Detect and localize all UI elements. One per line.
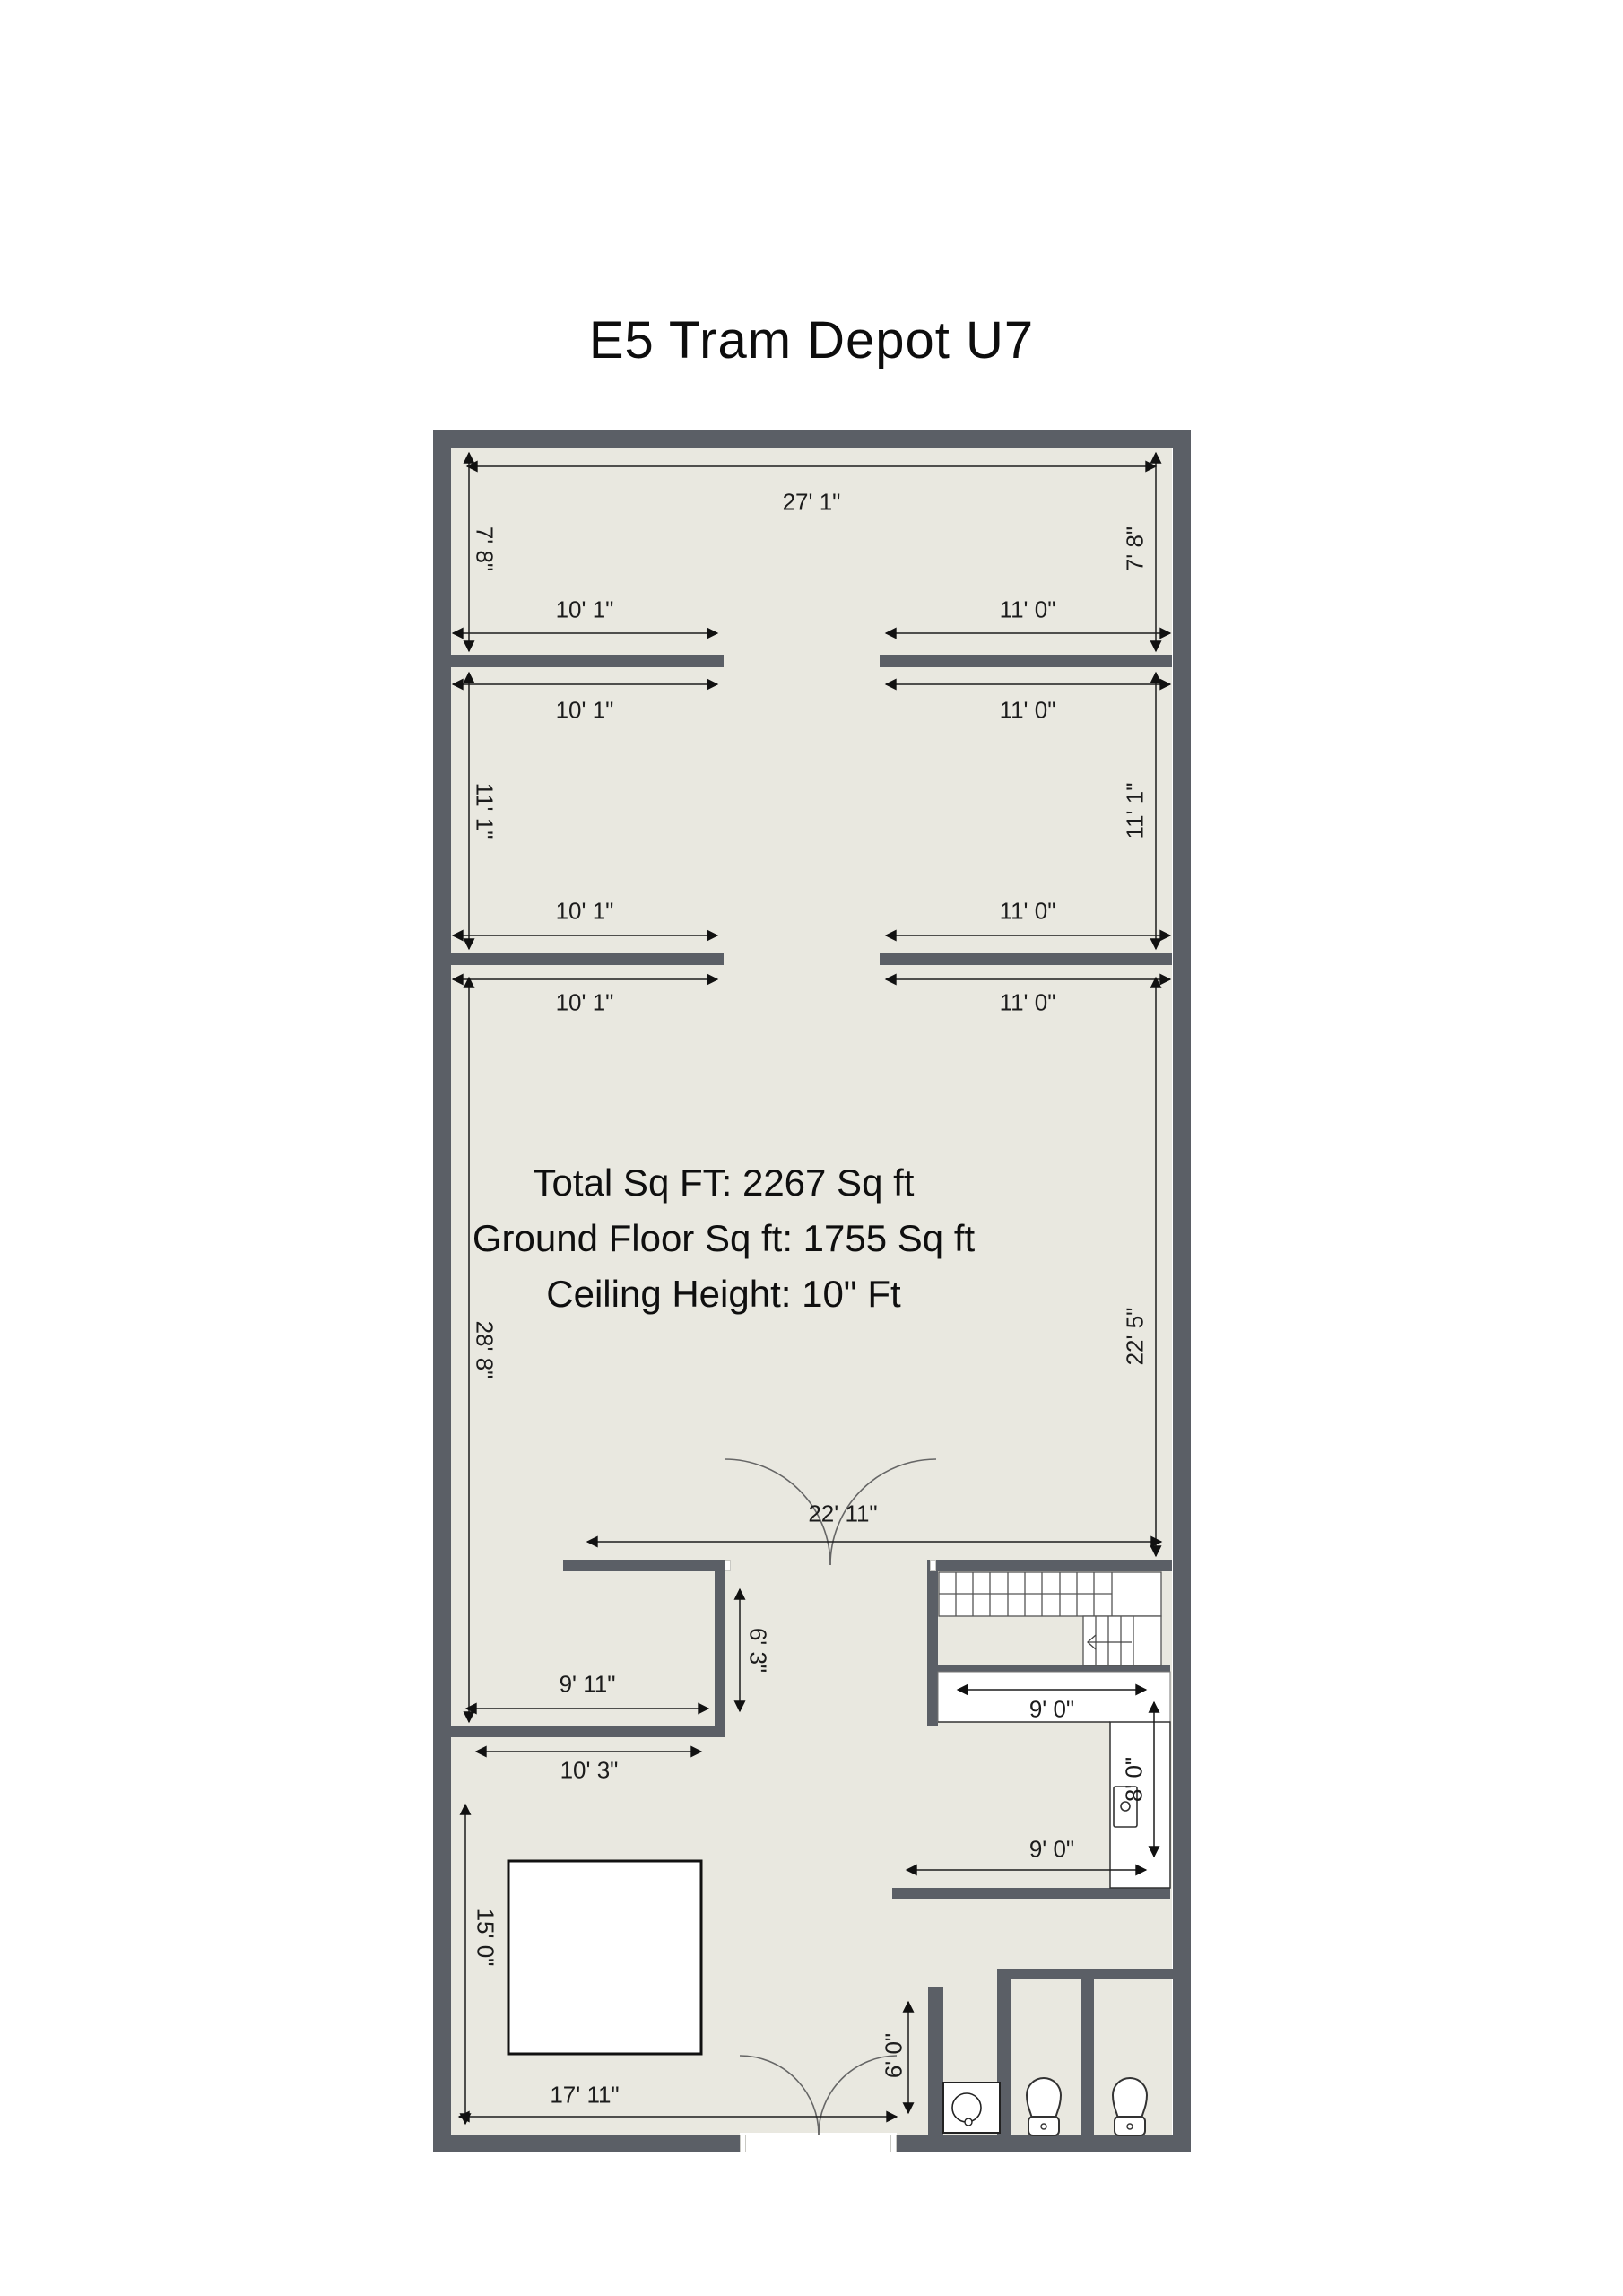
double-door-entrance <box>740 2056 897 2135</box>
summary-ceiling-height: Ceiling Height: 10" Ft <box>473 1266 975 1322</box>
summary-ground-sqft: Ground Floor Sq ft: 1755 Sq ft <box>473 1211 975 1266</box>
dim-label-28-8: 28' 8" <box>471 1321 499 1379</box>
bathroom-sink-icon <box>943 2083 1000 2133</box>
dim-label-22-11: 22' 11" <box>808 1500 877 1528</box>
dim-label-22-5: 22' 5" <box>1122 1308 1150 1366</box>
dim-label-11-0-room3: 11' 0" <box>1000 989 1056 1017</box>
dim-label-7-8-right: 7' 8" <box>1122 526 1150 571</box>
dim-label-11-1-right: 11' 1" <box>1122 783 1150 839</box>
dim-label-6-3: 6' 3" <box>744 1628 772 1673</box>
dim-label-9-0-upper: 9' 0" <box>1029 1696 1074 1724</box>
dim-label-15-0: 15' 0" <box>472 1909 499 1967</box>
dim-label-11-0-room2-bottom: 11' 0" <box>1000 898 1056 926</box>
dim-label-10-1-room3: 10' 1" <box>556 989 614 1017</box>
dim-label-10-1-room2-bottom: 10' 1" <box>556 898 614 926</box>
dim-label-17-11: 17' 11" <box>550 2082 619 2109</box>
dim-label-9-0-lower: 9' 0" <box>1029 1836 1074 1864</box>
summary-total-sqft: Total Sq FT: 2267 Sq ft <box>473 1155 975 1211</box>
dim-label-27-1: 27' 1" <box>783 489 841 517</box>
platform-void <box>508 1861 701 2054</box>
floorplan-page: E5 Tram Depot U7 <box>0 0 1623 2296</box>
dim-label-11-1-left: 11' 1" <box>471 783 499 839</box>
dim-label-9-11: 9' 11" <box>560 1671 616 1699</box>
dim-label-6-0: 6' 0" <box>881 2033 908 2078</box>
staircase <box>939 1572 1161 1665</box>
toilet-icon-1 <box>1027 2078 1061 2135</box>
dim-label-10-3: 10' 3" <box>560 1757 619 1785</box>
area-summary: Total Sq FT: 2267 Sq ft Ground Floor Sq … <box>473 1155 975 1322</box>
dim-label-10-1-room2-top: 10' 1" <box>556 697 614 725</box>
dim-label-7-8-left: 7' 8" <box>471 526 499 571</box>
dim-label-10-1-room1: 10' 1" <box>556 596 614 624</box>
plan-vector-overlay <box>0 0 1623 2296</box>
dim-label-8-0: 8' 0" <box>1121 1757 1149 1802</box>
dim-label-11-0-room1: 11' 0" <box>1000 596 1056 624</box>
dim-label-11-0-room2-top: 11' 0" <box>1000 697 1056 725</box>
toilet-icon-2 <box>1113 2078 1147 2135</box>
